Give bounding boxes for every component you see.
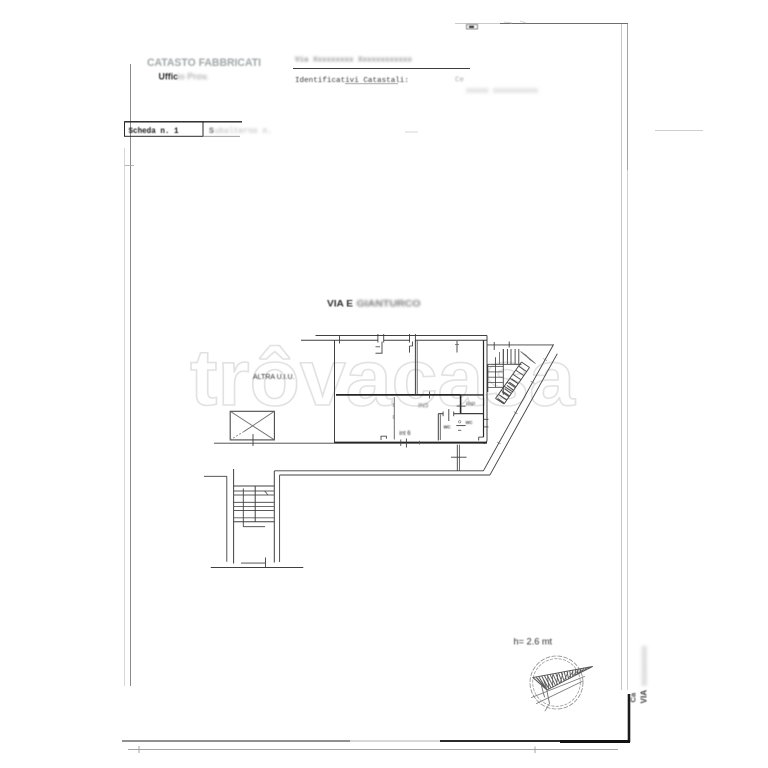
svg-text:GIANTURCO: GIANTURCO [357, 298, 421, 309]
svg-text:IN3: IN3 [418, 403, 429, 410]
svg-text:Uffic: Uffic [159, 72, 179, 82]
svg-text:WC: WC [444, 425, 451, 430]
svg-text:VIA: VIA [640, 690, 649, 704]
svg-text:VIA E: VIA E [327, 299, 353, 309]
svg-text:CATASTO FABBRICATI: CATASTO FABBRICATI [147, 57, 261, 69]
svg-text:xxxxx xxxxxxxxxx: xxxxx xxxxxxxxxx [466, 88, 539, 96]
svg-text:io Prov.: io Prov. [177, 72, 209, 82]
svg-text:Ce: Ce [455, 77, 464, 85]
svg-text:xxxxxxxxx: xxxxxxxxx [640, 645, 649, 686]
svg-text:h= 2.6 mt: h= 2.6 mt [514, 637, 553, 647]
svg-text:ubalterno n.: ubalterno n. [215, 127, 273, 136]
svg-text:WC: WC [466, 420, 473, 425]
svg-text:RIP: RIP [466, 402, 476, 408]
svg-text:ALTRA U.I.U.: ALTRA U.I.U. [253, 374, 295, 381]
svg-text:int 6: int 6 [399, 431, 411, 437]
svg-text:S: S [209, 127, 214, 136]
svg-text:Scheda n. 1: Scheda n. 1 [129, 128, 179, 136]
svg-text:Via Xxxxxxxxx Xxxxxxxxxxxx: Via Xxxxxxxxx Xxxxxxxxxxxx [295, 57, 413, 65]
